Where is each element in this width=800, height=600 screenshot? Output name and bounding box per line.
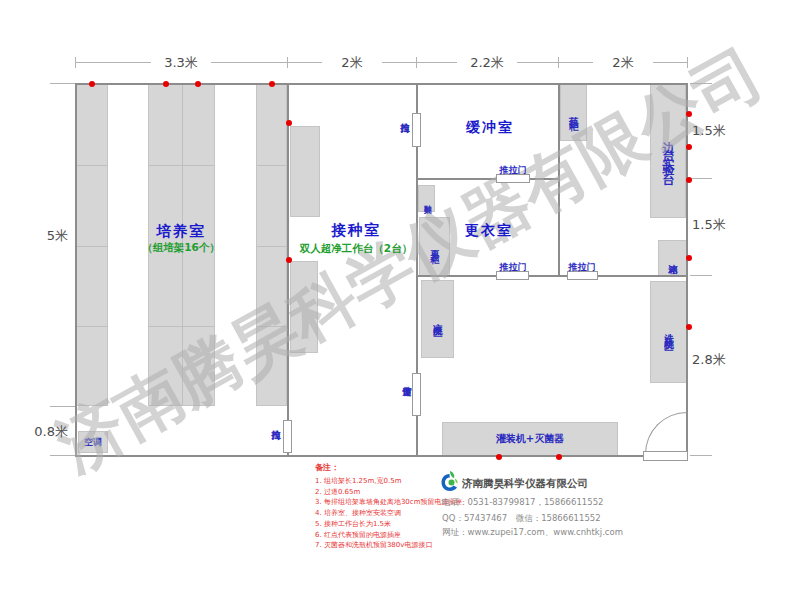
- note-item: 7. 灭菌器和洗瓶机预留380v电源接口: [315, 540, 462, 551]
- transfer-window: [412, 373, 421, 416]
- sliding-door-changing-bottom-label: 推拉门: [496, 261, 530, 274]
- dim-tick: [558, 57, 559, 68]
- dim-tick: [690, 455, 712, 456]
- dim-top-3: 2.2米: [457, 55, 517, 70]
- power-socket-dot: [286, 257, 292, 263]
- power-socket-dot: [686, 177, 692, 183]
- dim-top-4: 2米: [593, 55, 653, 70]
- dim-tick: [50, 406, 75, 407]
- wall-buffer-changing: [416, 178, 560, 180]
- inoculation-room-label: 接种室: [314, 221, 398, 240]
- power-socket-dot: [286, 120, 292, 126]
- note-item: 3. 每排组培架靠墙角处离地30cm预留电源插座: [315, 497, 462, 508]
- wall-changing-bottom: [416, 275, 688, 277]
- dim-right-3: 2.8米: [692, 352, 736, 367]
- swing-door-leaf: [643, 451, 688, 461]
- power-socket-dot: [269, 81, 275, 87]
- dim-tick: [287, 57, 288, 68]
- note-item: 4. 培养室、接种室安装空调: [315, 508, 462, 519]
- dim-top-1: 3.3米: [151, 55, 211, 70]
- phone-line: 电话：0531-83799817，15866611552: [442, 497, 603, 509]
- dim-tick: [50, 83, 75, 84]
- dim-tick: [50, 455, 75, 456]
- power-socket-dot: [686, 144, 692, 150]
- changing-room-label: 更衣室: [447, 222, 531, 240]
- dim-left-2: 0.8米: [26, 424, 68, 439]
- buffer-room-label: 缓冲室: [448, 119, 532, 137]
- power-socket-dot: [163, 81, 169, 87]
- power-socket-dot: [496, 454, 502, 460]
- company-logo: [440, 470, 459, 498]
- dim-tick: [690, 275, 712, 276]
- wall-buffer-sidebench: [558, 83, 560, 277]
- power-socket-dot: [686, 324, 692, 330]
- dim-right-2: 1.5米: [692, 217, 736, 232]
- dim-tick: [416, 57, 417, 68]
- company-name: 济南腾昊科学仪器有限公司: [462, 477, 588, 491]
- sliding-door-buffer: [412, 113, 421, 147]
- dim-tick: [690, 178, 712, 179]
- inoculation-room-sublabel: 双人超净工作台（2台）: [292, 242, 420, 256]
- power-socket-dot: [195, 81, 201, 87]
- culture-room-label: 培养室: [139, 222, 223, 241]
- qq-line: QQ：57437467 微信：15866611552: [442, 513, 601, 525]
- sliding-door-sidebench-bottom-label: 推拉门: [564, 261, 600, 274]
- note-item: 6. 红点代表预留的电源插座: [315, 530, 462, 541]
- website-line: 网址：www.zupei17.com、www.cnhtkj.com: [442, 527, 623, 539]
- dim-left-1: 5米: [36, 228, 68, 243]
- sliding-door-culture: [283, 420, 292, 453]
- note-item: 5. 接种工作台长为1.5米: [315, 519, 462, 530]
- dim-tick: [690, 83, 712, 84]
- culture-room-sublabel: （组培架16个）: [135, 241, 227, 255]
- wall-culture-inoculation: [287, 83, 289, 457]
- dim-right-1: 1.5米: [692, 123, 736, 138]
- sliding-door-buffer-changing-label: 推拉门: [496, 164, 530, 177]
- dim-top-2: 2米: [322, 55, 382, 70]
- floor-plan-page: 济南腾昊科学仪器有限公司 空调 药品柜 边台实验台 冰箱 洗瓶机区 凉瓶区 鞋架: [0, 0, 800, 600]
- power-socket-dot: [686, 111, 692, 117]
- power-socket-dot: [556, 454, 562, 460]
- power-socket-dot: [686, 255, 692, 261]
- power-socket-dot: [89, 81, 95, 87]
- dim-tick: [75, 57, 76, 68]
- dim-tick: [687, 57, 688, 68]
